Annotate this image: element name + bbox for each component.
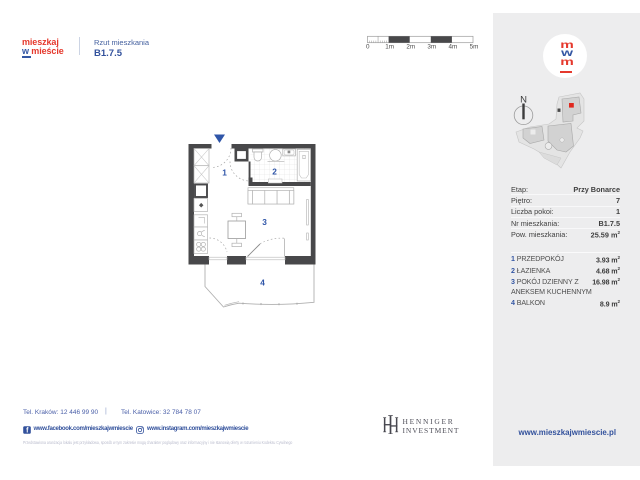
svg-text:4m: 4m [449, 44, 458, 51]
svg-text:1: 1 [222, 168, 227, 178]
svg-text:3: 3 [262, 217, 267, 227]
svg-text:2: 2 [272, 167, 277, 177]
svg-text:3m: 3m [427, 44, 436, 51]
svg-text:2m: 2m [406, 44, 415, 51]
svg-text:4: 4 [260, 277, 265, 287]
svg-text:0: 0 [366, 44, 370, 51]
svg-text:1m: 1m [385, 44, 394, 51]
svg-text:5m: 5m [470, 44, 479, 51]
